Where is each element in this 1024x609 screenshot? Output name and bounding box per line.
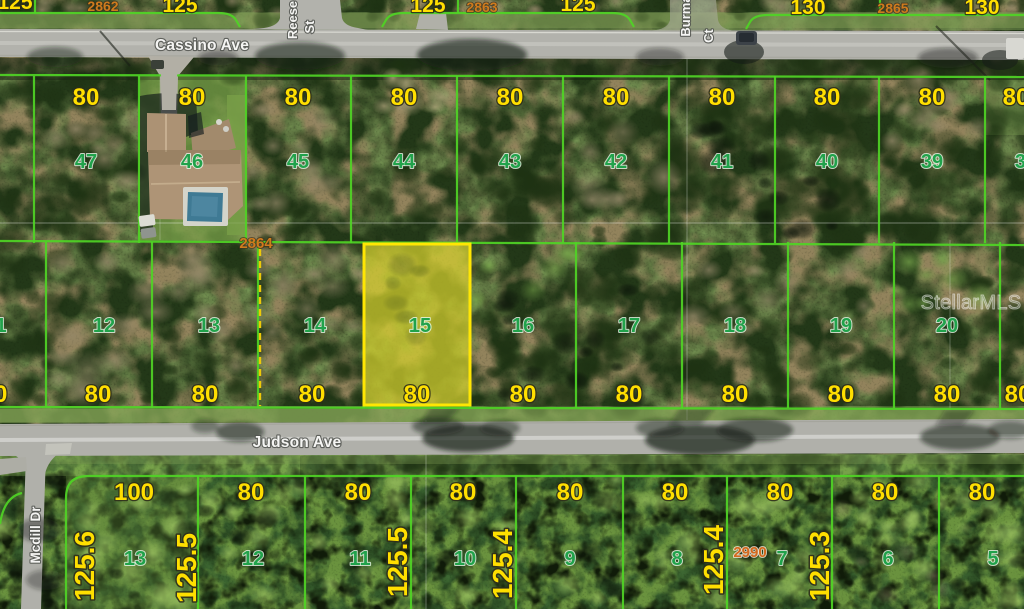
svg-text:20: 20 xyxy=(936,315,958,337)
svg-text:80: 80 xyxy=(828,381,855,408)
svg-text:80: 80 xyxy=(285,84,312,111)
svg-text:5: 5 xyxy=(987,548,998,570)
svg-text:47: 47 xyxy=(75,151,97,173)
svg-text:15: 15 xyxy=(409,315,431,337)
svg-text:80: 80 xyxy=(450,479,477,506)
svg-text:80: 80 xyxy=(1003,84,1024,111)
svg-text:130: 130 xyxy=(790,0,825,19)
svg-text:10: 10 xyxy=(454,548,476,570)
svg-text:125: 125 xyxy=(0,0,33,14)
svg-text:125: 125 xyxy=(410,0,445,17)
svg-text:80: 80 xyxy=(603,84,630,111)
svg-text:80: 80 xyxy=(73,84,100,111)
svg-text:80: 80 xyxy=(934,381,961,408)
svg-text:42: 42 xyxy=(605,151,627,173)
svg-text:80: 80 xyxy=(872,479,899,506)
svg-text:40: 40 xyxy=(816,151,838,173)
svg-text:2990: 2990 xyxy=(733,544,766,561)
svg-text:8: 8 xyxy=(671,548,682,570)
svg-text:100: 100 xyxy=(114,479,154,506)
svg-text:StellarMLS: StellarMLS xyxy=(921,292,1022,314)
svg-text:Cassino Ave: Cassino Ave xyxy=(155,37,249,54)
svg-text:125.6: 125.6 xyxy=(69,531,100,601)
svg-text:80: 80 xyxy=(404,381,431,408)
svg-text:19: 19 xyxy=(830,315,852,337)
svg-text:80: 80 xyxy=(767,479,794,506)
svg-text:80: 80 xyxy=(1005,381,1024,408)
svg-text:80: 80 xyxy=(0,381,7,408)
svg-text:80: 80 xyxy=(238,479,265,506)
svg-text:80: 80 xyxy=(510,381,537,408)
svg-text:125: 125 xyxy=(560,0,595,16)
svg-text:80: 80 xyxy=(969,479,996,506)
svg-text:80: 80 xyxy=(85,381,112,408)
svg-text:44: 44 xyxy=(393,151,416,173)
svg-text:7: 7 xyxy=(776,548,787,570)
svg-text:80: 80 xyxy=(616,381,643,408)
svg-text:80: 80 xyxy=(662,479,689,506)
svg-text:125.4: 125.4 xyxy=(698,525,729,595)
svg-text:Mcdill Dr: Mcdill Dr xyxy=(28,506,43,564)
svg-text:130: 130 xyxy=(964,0,999,19)
svg-text:80: 80 xyxy=(709,84,736,111)
svg-text:41: 41 xyxy=(711,151,733,173)
svg-text:125.5: 125.5 xyxy=(171,533,202,603)
svg-text:125: 125 xyxy=(162,0,197,17)
svg-text:Ct: Ct xyxy=(701,28,716,42)
svg-text:St: St xyxy=(302,20,317,34)
svg-text:2865: 2865 xyxy=(877,0,908,16)
svg-text:12: 12 xyxy=(242,548,264,570)
svg-text:2862: 2862 xyxy=(87,0,118,14)
svg-text:125.4: 125.4 xyxy=(487,529,518,599)
svg-text:11: 11 xyxy=(0,315,7,337)
svg-text:11: 11 xyxy=(349,548,370,570)
svg-text:6: 6 xyxy=(882,548,893,570)
svg-text:14: 14 xyxy=(304,315,327,337)
svg-text:13: 13 xyxy=(198,315,220,337)
svg-text:80: 80 xyxy=(345,479,372,506)
svg-text:17: 17 xyxy=(618,315,640,337)
svg-text:80: 80 xyxy=(919,84,946,111)
svg-text:39: 39 xyxy=(921,151,943,173)
svg-text:9: 9 xyxy=(564,548,575,570)
svg-text:Judson Ave: Judson Ave xyxy=(253,434,342,451)
svg-text:13: 13 xyxy=(124,548,146,570)
svg-text:125.5: 125.5 xyxy=(382,527,413,597)
svg-text:Reese: Reese xyxy=(285,1,300,39)
svg-text:80: 80 xyxy=(192,381,219,408)
svg-text:80: 80 xyxy=(497,84,524,111)
svg-text:38: 38 xyxy=(1015,151,1024,173)
svg-text:80: 80 xyxy=(299,381,326,408)
svg-text:80: 80 xyxy=(179,84,206,111)
svg-text:12: 12 xyxy=(93,315,115,337)
svg-text:43: 43 xyxy=(499,151,521,173)
svg-text:16: 16 xyxy=(512,315,534,337)
svg-text:46: 46 xyxy=(181,151,203,173)
svg-text:2863: 2863 xyxy=(466,0,497,15)
svg-text:Burma: Burma xyxy=(678,0,693,37)
svg-text:80: 80 xyxy=(391,84,418,111)
svg-text:2864: 2864 xyxy=(239,235,273,252)
svg-text:80: 80 xyxy=(814,84,841,111)
svg-text:45: 45 xyxy=(287,151,309,173)
svg-text:18: 18 xyxy=(724,315,746,337)
svg-text:80: 80 xyxy=(557,479,584,506)
svg-text:125.3: 125.3 xyxy=(804,531,835,601)
svg-text:80: 80 xyxy=(722,381,749,408)
